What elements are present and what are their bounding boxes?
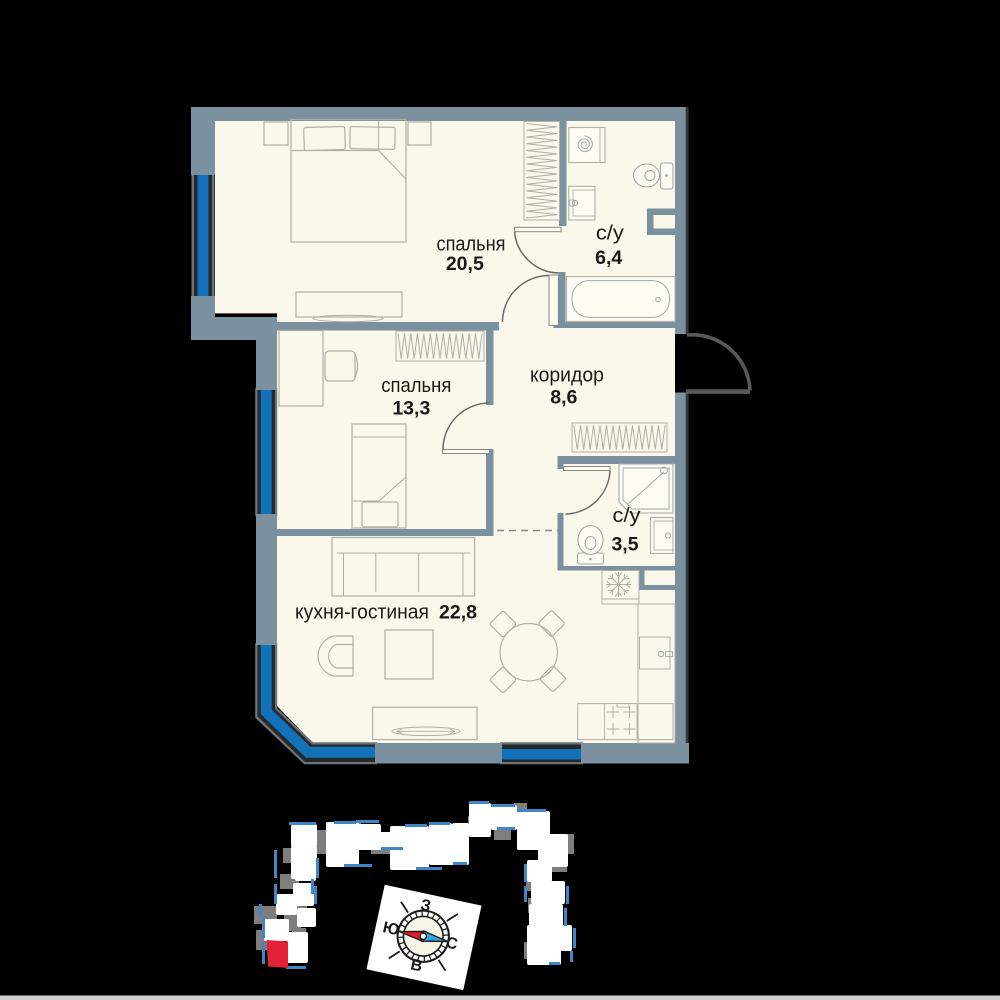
svg-text:с/у: с/у — [613, 505, 641, 527]
svg-text:6,4: 6,4 — [595, 247, 622, 269]
svg-text:8,6: 8,6 — [550, 386, 577, 408]
svg-text:Ю: Ю — [381, 919, 401, 939]
svg-text:13,3: 13,3 — [392, 398, 430, 420]
svg-text:спальня: спальня — [381, 374, 451, 397]
svg-text:3,5: 3,5 — [611, 534, 638, 556]
svg-text:кухня-гостиная: кухня-гостиная — [295, 601, 429, 624]
svg-text:с/у: с/у — [596, 222, 624, 244]
svg-text:22,8: 22,8 — [439, 602, 477, 624]
svg-text:20,5: 20,5 — [446, 253, 484, 275]
svg-text:коридор: коридор — [530, 364, 604, 387]
